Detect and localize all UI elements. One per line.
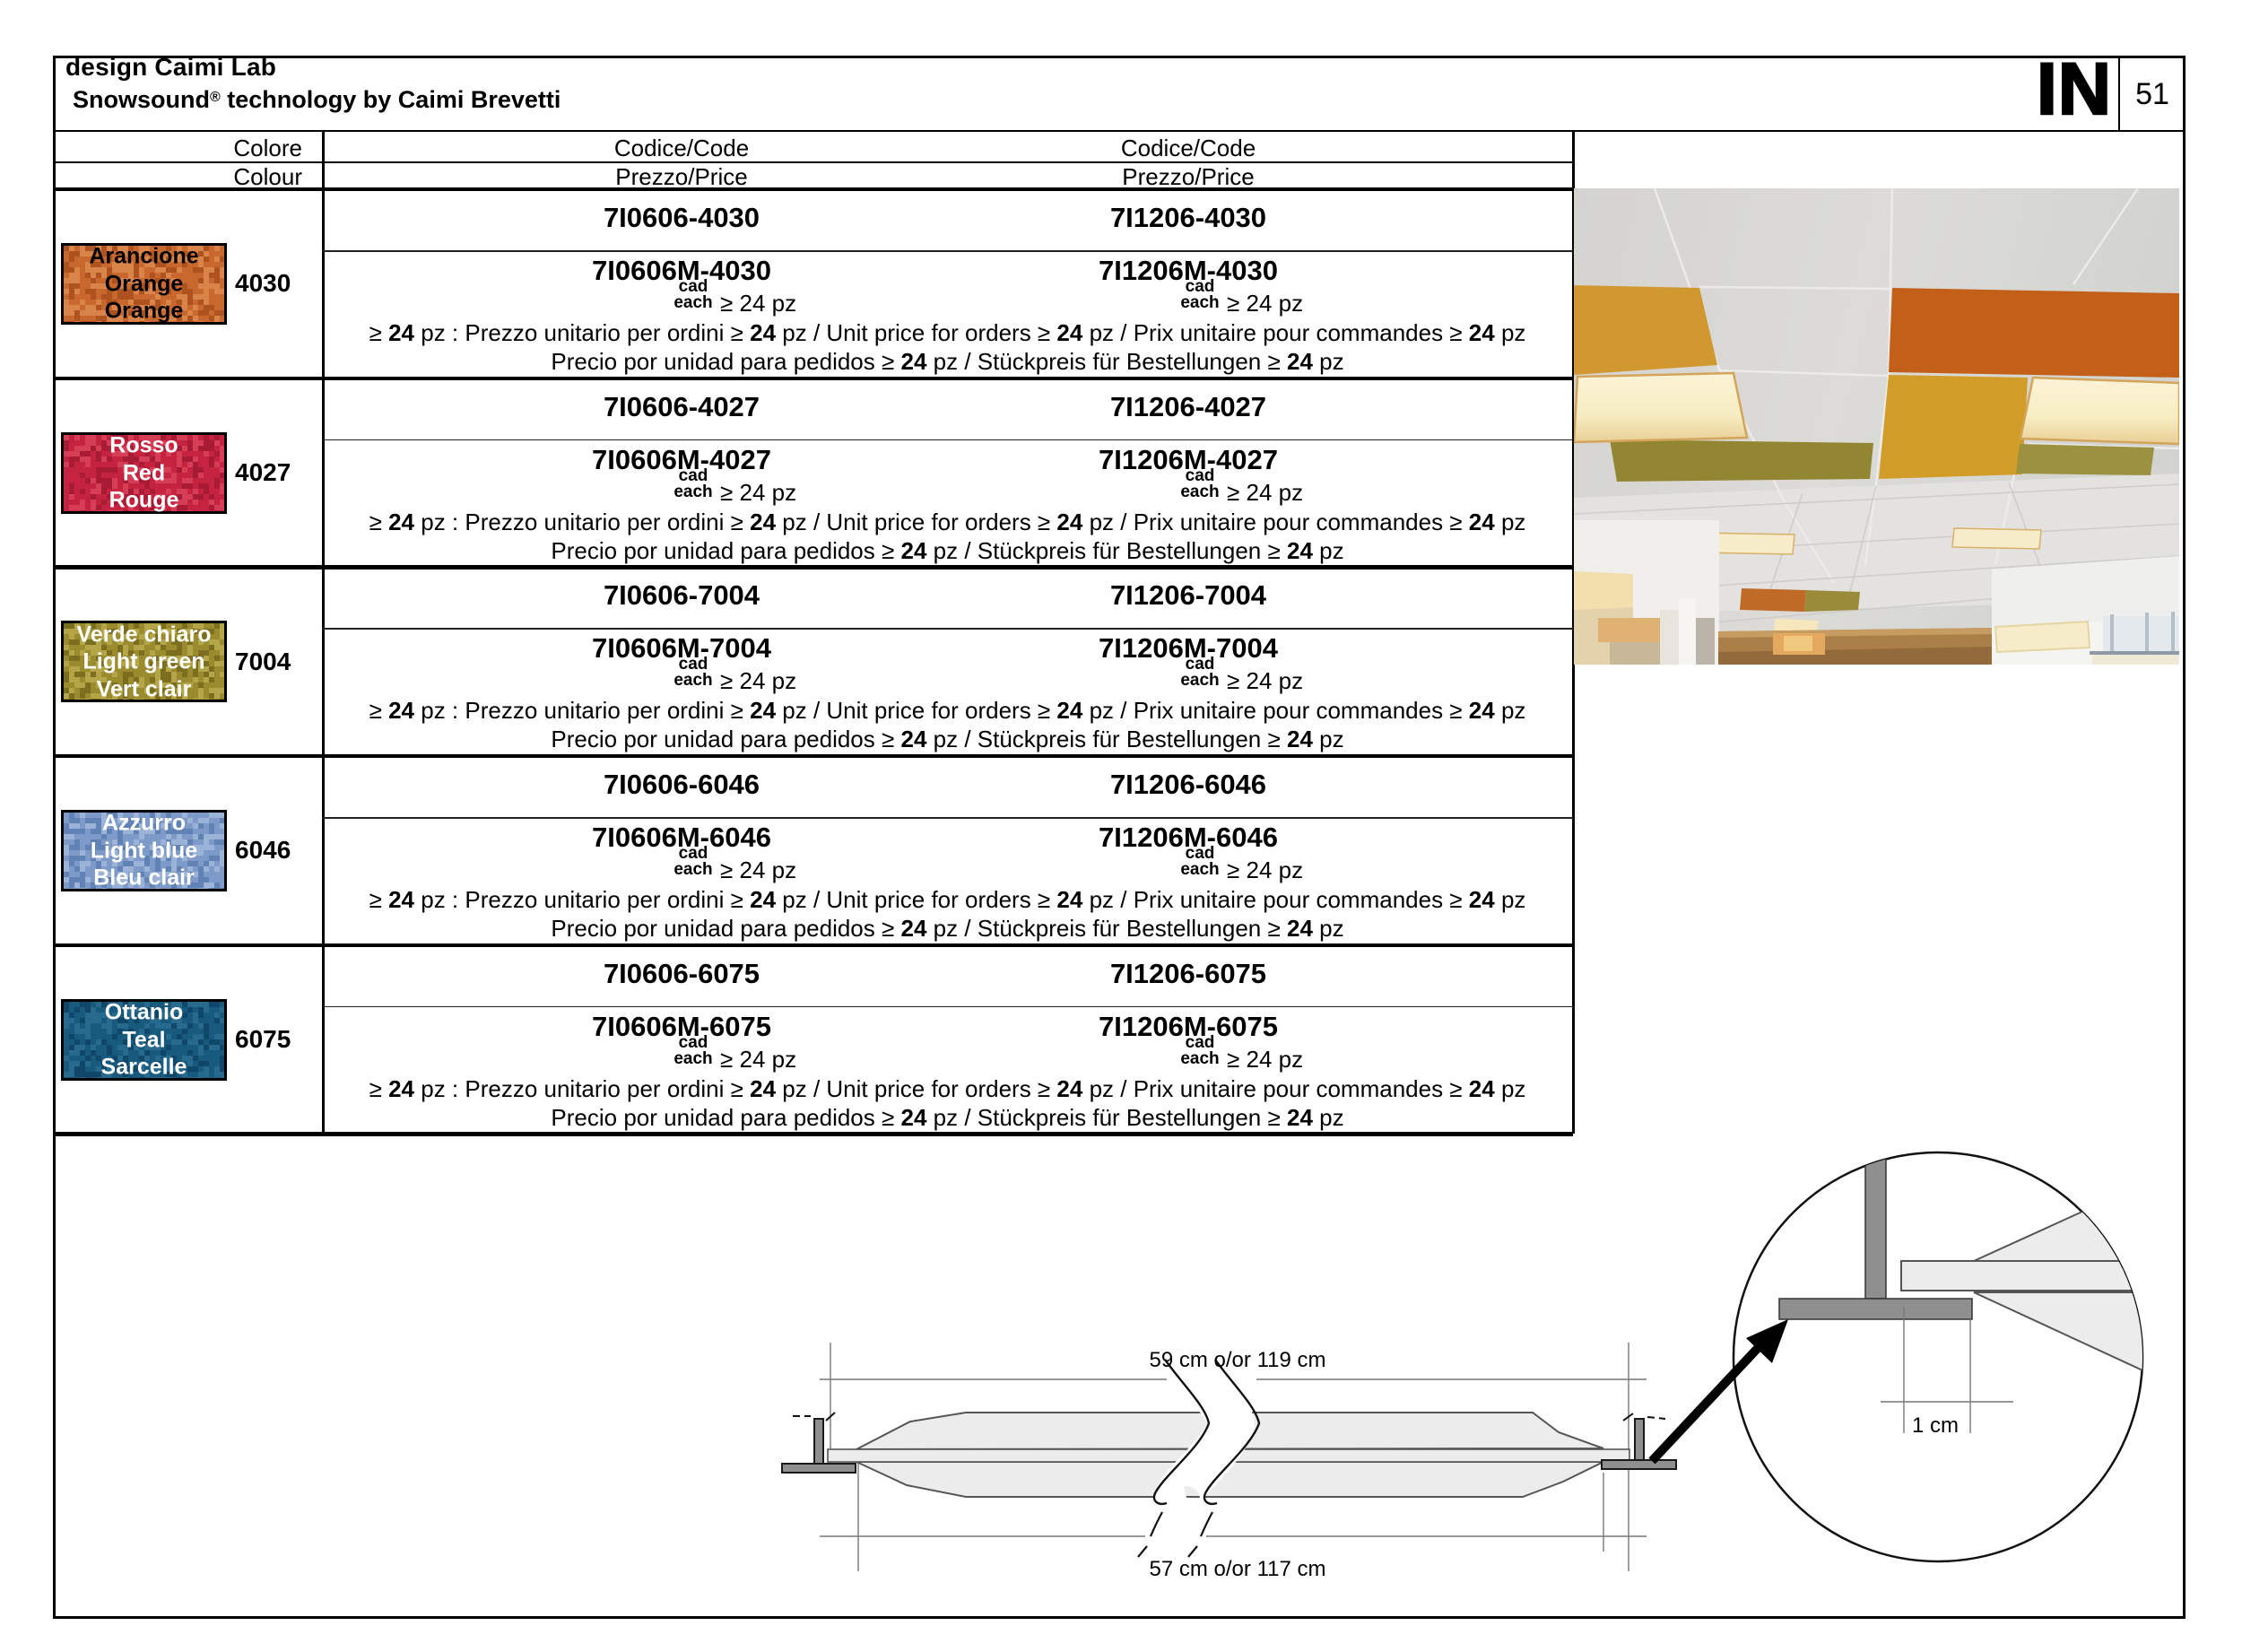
svg-text:59 cm o/or 119 cm: 59 cm o/or 119 cm [1150, 1348, 1326, 1372]
svg-text:1 cm: 1 cm [1912, 1413, 1959, 1438]
svg-text:57 cm o/or 117 cm: 57 cm o/or 117 cm [1150, 1557, 1326, 1581]
